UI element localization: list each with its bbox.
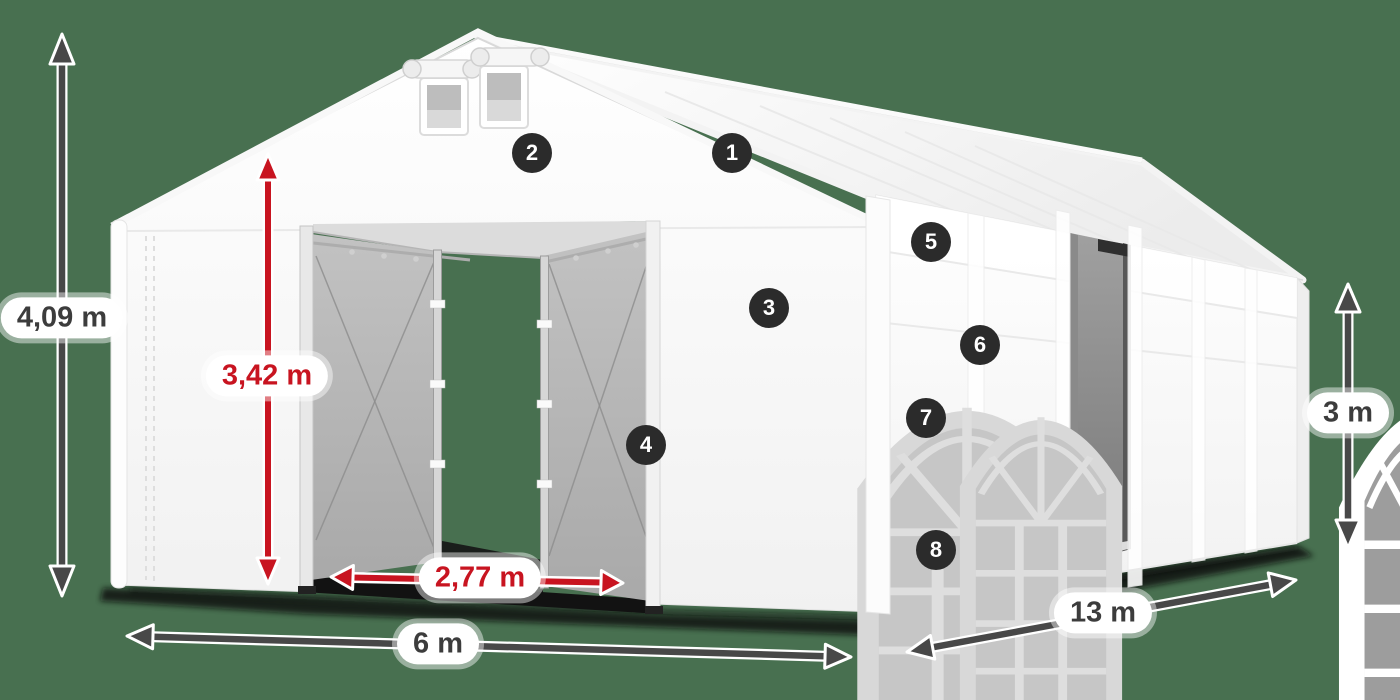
callout-badge-8[interactable]: 8: [916, 530, 956, 570]
tent-width-arrow: [127, 625, 851, 668]
callout-badge-2[interactable]: 2: [512, 133, 552, 173]
tent-length-label: 13 m: [1054, 592, 1152, 633]
callout-badge-4[interactable]: 4: [626, 425, 666, 465]
total-height-label: 4,09 m: [1, 297, 123, 338]
side-windows: [1331, 405, 1400, 700]
callout-badge-3[interactable]: 3: [749, 288, 789, 328]
callout-badge-1[interactable]: 1: [712, 133, 752, 173]
tent-illustration: [0, 0, 1400, 700]
entrance-height-label: 3,42 m: [206, 355, 328, 396]
tent-width-label: 6 m: [397, 623, 479, 664]
entrance-width-label: 2,77 m: [419, 557, 541, 598]
callout-badge-5[interactable]: 5: [911, 222, 951, 262]
callout-badge-6[interactable]: 6: [960, 325, 1000, 365]
tent-dimensions-diagram: 4,09 m 3,42 m 2,77 m 6 m 13 m 3 m 1 2 3 …: [0, 0, 1400, 700]
side-height-label: 3 m: [1307, 392, 1389, 433]
corner-sleeve-right: [866, 196, 890, 614]
corner-sleeve-left: [111, 220, 127, 588]
callout-badge-7[interactable]: 7: [906, 398, 946, 438]
